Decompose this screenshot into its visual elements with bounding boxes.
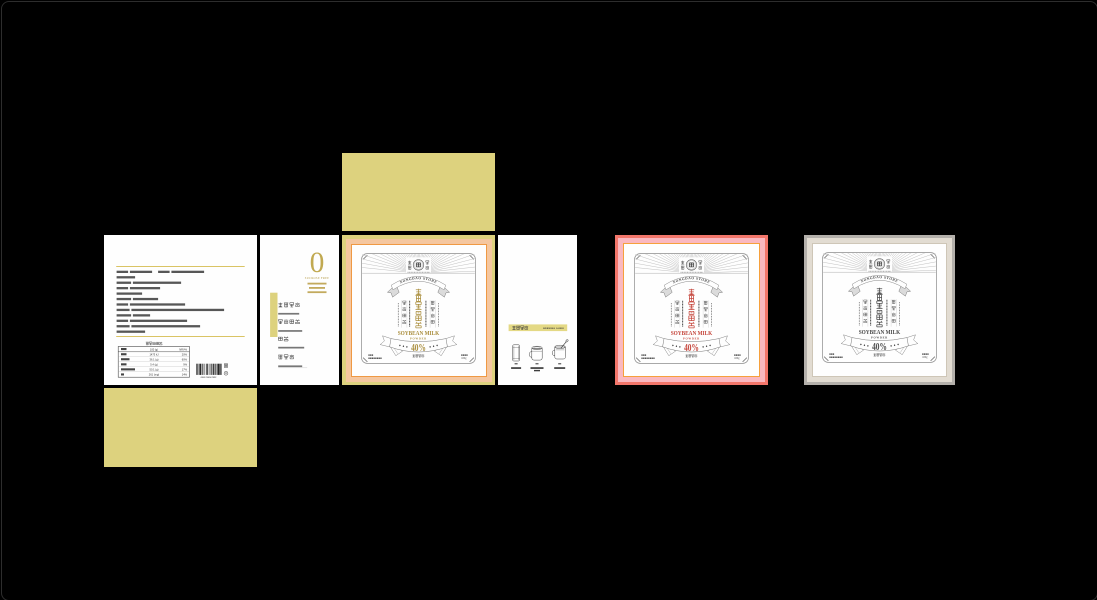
svg-text:9%: 9% bbox=[183, 363, 187, 367]
svg-text:40%: 40% bbox=[872, 342, 887, 353]
svg-text:NRV%: NRV% bbox=[179, 347, 187, 351]
svg-text:17%: 17% bbox=[182, 368, 188, 372]
svg-text:40%: 40% bbox=[684, 343, 699, 354]
svg-text:20%: 20% bbox=[182, 353, 188, 357]
svg-text:POWDER: POWDER bbox=[871, 336, 888, 340]
svg-text:100 (g): 100 (g) bbox=[150, 347, 158, 351]
svg-text:5.4 (g): 5.4 (g) bbox=[150, 363, 158, 367]
svg-text:SUCROSE FREE: SUCROSE FREE bbox=[304, 276, 328, 280]
svg-text:36.1 (g): 36.1 (g) bbox=[150, 358, 159, 362]
svg-text:261 (mg): 261 (mg) bbox=[149, 373, 160, 377]
svg-text:50.1 (g): 50.1 (g) bbox=[150, 368, 159, 372]
svg-text:POWDER: POWDER bbox=[683, 336, 700, 340]
svg-text:1473 kJ: 1473 kJ bbox=[149, 353, 159, 357]
svg-text:40%: 40% bbox=[411, 342, 426, 353]
svg-text:BREWING GUIDE: BREWING GUIDE bbox=[543, 328, 564, 330]
svg-text:6901234567892: 6901234567892 bbox=[201, 377, 218, 379]
svg-text:POWDER: POWDER bbox=[410, 336, 427, 340]
svg-text:0: 0 bbox=[309, 247, 324, 279]
svg-text:14%: 14% bbox=[182, 373, 188, 377]
svg-text:100g: 100g bbox=[734, 357, 740, 360]
svg-text:60%: 60% bbox=[182, 358, 188, 362]
